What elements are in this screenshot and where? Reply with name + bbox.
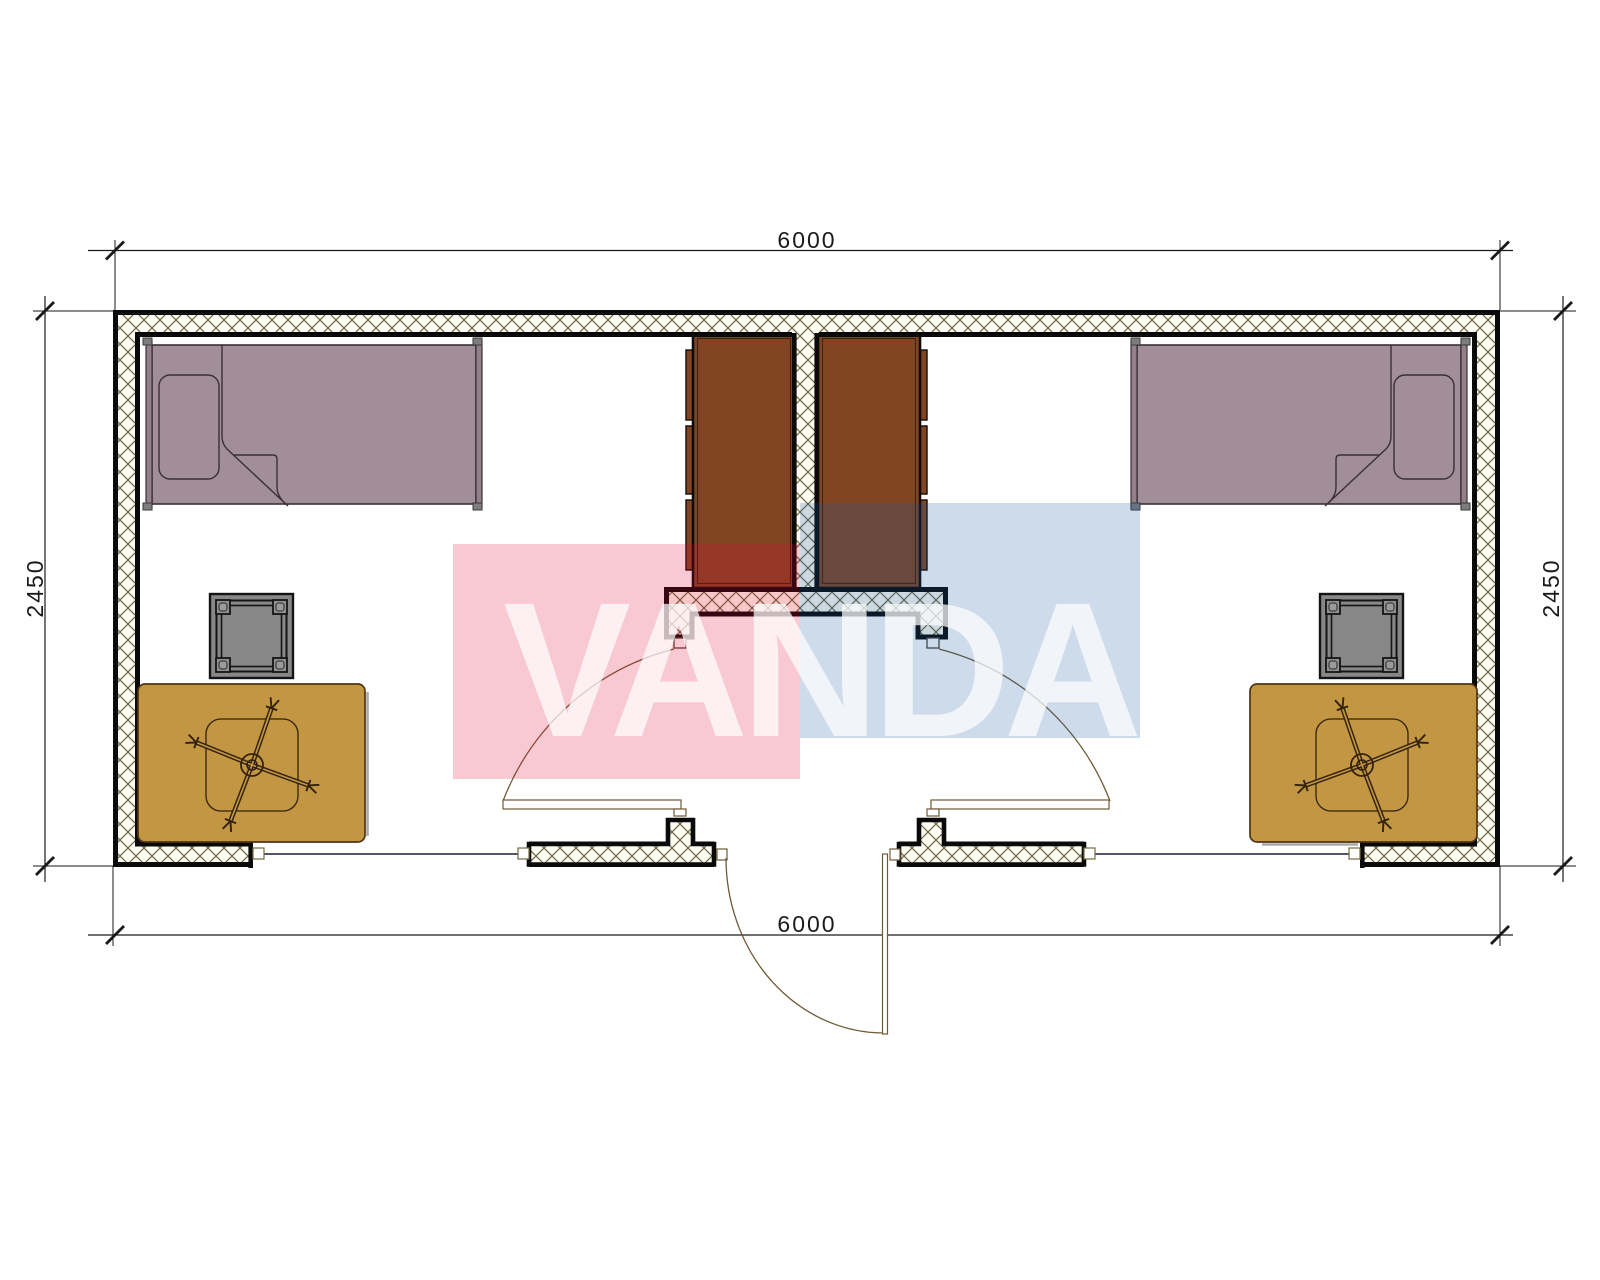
svg-text:VANDA: VANDA <box>503 562 1138 777</box>
svg-text:6000: 6000 <box>777 227 836 253</box>
svg-text:2450: 2450 <box>1538 558 1564 617</box>
svg-text:6000: 6000 <box>777 911 836 937</box>
svg-text:2450: 2450 <box>22 558 48 617</box>
